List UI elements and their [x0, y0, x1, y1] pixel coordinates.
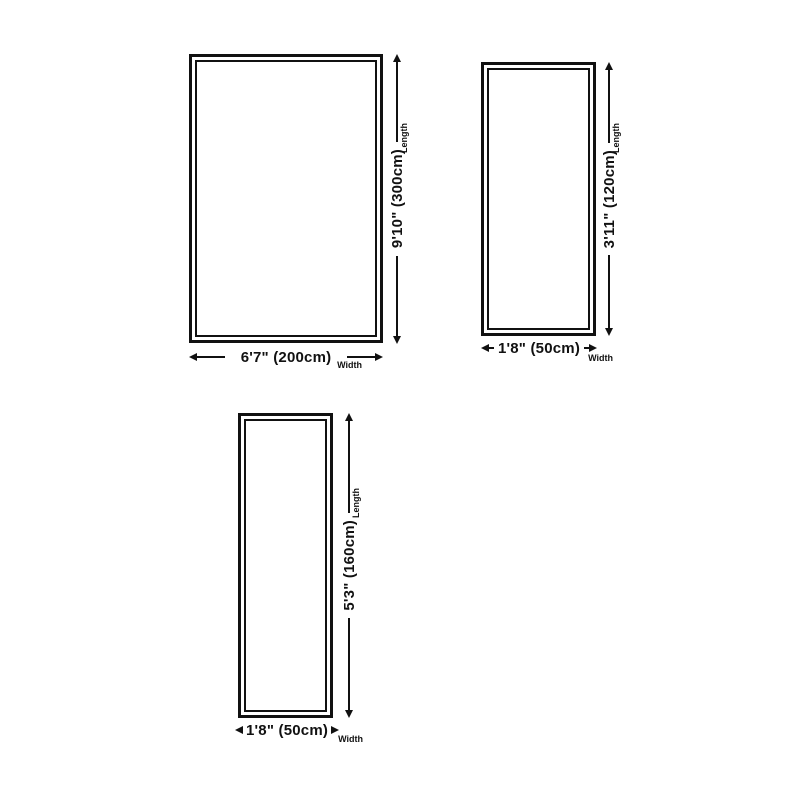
- length-value: 3'11" (120cm): [601, 150, 618, 248]
- width-dimension: 1'8" (50cm) Width: [481, 340, 597, 356]
- length-value: 5'3" (160cm): [341, 520, 358, 611]
- length-caption: Length: [611, 123, 621, 153]
- rug-inner-outline: [195, 60, 377, 337]
- arrow-left-icon: [235, 726, 243, 734]
- rug-outline: [481, 62, 596, 336]
- dimension-line: [608, 255, 610, 328]
- arrow-up-icon: [393, 54, 401, 62]
- length-caption: Length: [399, 123, 409, 153]
- arrow-up-icon: [605, 62, 613, 70]
- arrow-up-icon: [345, 413, 353, 421]
- arrow-down-icon: [345, 710, 353, 718]
- width-caption: Width: [338, 734, 363, 744]
- dimension-line: [197, 356, 225, 358]
- dimension-line: [396, 62, 398, 142]
- dimension-line: [347, 356, 375, 358]
- arrow-right-icon: [589, 344, 597, 352]
- width-caption: Width: [588, 353, 613, 363]
- rug-size-chart: 9'10" (300cm) Length 6'7" (200cm) Width …: [0, 0, 800, 800]
- length-caption: Length: [351, 488, 361, 518]
- dimension-line: [608, 70, 610, 143]
- rug-outline: [189, 54, 383, 343]
- dimension-line: [396, 256, 398, 336]
- dimension-line: [348, 618, 350, 710]
- length-dimension: 5'3" (160cm) Length: [342, 413, 356, 718]
- length-dimension: 3'11" (120cm) Length: [602, 62, 616, 336]
- length-dimension: 9'10" (300cm) Length: [390, 54, 404, 344]
- arrow-right-icon: [375, 353, 383, 361]
- dimension-line: [348, 421, 350, 513]
- width-value: 1'8" (50cm): [498, 340, 580, 357]
- rug-inner-outline: [487, 68, 590, 330]
- width-dimension: 6'7" (200cm) Width: [189, 349, 383, 365]
- length-value: 9'10" (300cm): [389, 149, 406, 248]
- arrow-down-icon: [393, 336, 401, 344]
- width-dimension: 1'8" (50cm) Width: [235, 722, 337, 738]
- width-value: 1'8" (50cm): [246, 722, 328, 739]
- arrow-right-icon: [331, 726, 339, 734]
- arrow-left-icon: [481, 344, 489, 352]
- arrow-left-icon: [189, 353, 197, 361]
- width-value: 6'7" (200cm): [241, 349, 332, 366]
- width-caption: Width: [337, 360, 362, 370]
- rug-outline: [238, 413, 333, 718]
- rug-inner-outline: [244, 419, 327, 712]
- arrow-down-icon: [605, 328, 613, 336]
- dimension-line: [489, 347, 494, 349]
